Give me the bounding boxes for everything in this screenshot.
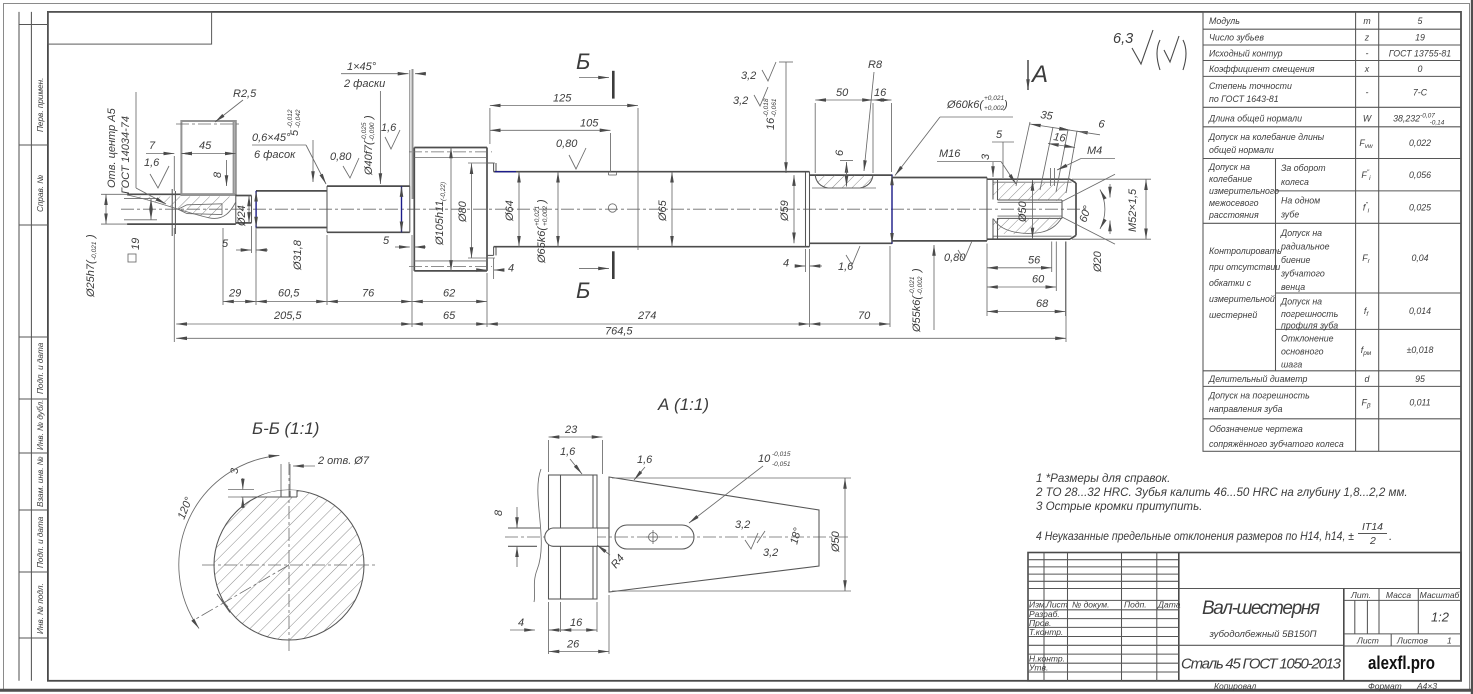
svg-text:+0,002: +0,002: [984, 105, 1004, 112]
svg-text:-0,002: -0,002: [917, 276, 924, 295]
svg-text:68: 68: [1036, 298, 1049, 310]
svg-text:колебание: колебание: [1209, 174, 1252, 184]
svg-text:29: 29: [228, 288, 241, 300]
svg-text:Исходный контур: Исходный контур: [1209, 49, 1283, 59]
svg-text:76: 76: [362, 288, 375, 300]
svg-text:2 отв. Ø7: 2 отв. Ø7: [317, 455, 370, 467]
svg-text:4: 4: [508, 263, 514, 275]
svg-text:45: 45: [199, 140, 212, 152]
svg-text:-0,042: -0,042: [295, 109, 302, 128]
svg-text:Ø40f7(: Ø40f7(: [363, 140, 375, 176]
svg-text:2 фаски: 2 фаски: [343, 78, 385, 90]
svg-text:Лит.: Лит.: [1350, 590, 1371, 600]
svg-text:1,6: 1,6: [144, 157, 160, 169]
svg-text:Взам. инв. №: Взам. инв. №: [36, 456, 45, 507]
svg-text:5: 5: [289, 129, 301, 136]
svg-text:Ø31,8: Ø31,8: [292, 239, 304, 271]
svg-text:19: 19: [130, 238, 142, 250]
svg-text:Отв. центр А5: Отв. центр А5: [106, 107, 118, 188]
svg-text:1,6: 1,6: [381, 122, 397, 134]
svg-text:1×45°: 1×45°: [347, 61, 377, 73]
svg-text:Ø50: Ø50: [830, 530, 842, 553]
svg-text:Подп. и дата: Подп. и дата: [36, 342, 45, 394]
svg-text:Ø105h11: Ø105h11: [434, 201, 446, 246]
svg-text:6,3: 6,3: [1113, 31, 1133, 47]
svg-text:ГОСТ 13755-81: ГОСТ 13755-81: [1389, 49, 1451, 59]
svg-text:Контролировать: Контролировать: [1209, 246, 1282, 256]
svg-text:Длина общей нормали: Длина общей нормали: [1208, 114, 1302, 124]
svg-text:x: x: [1364, 64, 1370, 74]
svg-text:колеса: колеса: [1281, 177, 1309, 187]
svg-text:1:2: 1:2: [1431, 610, 1450, 625]
svg-text:3,2: 3,2: [735, 519, 750, 531]
svg-text:0,011: 0,011: [1409, 398, 1430, 408]
svg-text:М16: М16: [939, 148, 961, 160]
svg-text:расстояния: расстояния: [1208, 210, 1259, 220]
svg-text:зубодолбежный 5В150П: зубодолбежный 5В150П: [1209, 629, 1317, 640]
svg-text:Допуск на: Допуск на: [1208, 162, 1250, 172]
svg-text:R2,5: R2,5: [233, 88, 257, 100]
svg-text:5: 5: [383, 235, 390, 247]
svg-text:Формат: Формат: [1368, 681, 1402, 691]
svg-text:Ø59: Ø59: [779, 200, 791, 222]
svg-text:alexfl.pro: alexfl.pro: [1368, 653, 1435, 673]
svg-text:7: 7: [149, 140, 156, 152]
svg-text:6: 6: [834, 149, 846, 156]
svg-text:Вал-шестерня: Вал-шестерня: [1202, 598, 1320, 619]
svg-text:зубе: зубе: [1280, 210, 1299, 220]
svg-text:Ø55k6(: Ø55k6(: [911, 295, 923, 333]
svg-text:3: 3: [980, 153, 992, 160]
svg-text:W: W: [1363, 114, 1372, 124]
svg-text:Инв. № подл.: Инв. № подл.: [36, 583, 45, 634]
svg-text:(-0,22): (-0,22): [440, 182, 447, 201]
svg-text:0,80: 0,80: [330, 151, 352, 163]
svg-text:10: 10: [758, 453, 771, 465]
svg-text:Масса: Масса: [1386, 590, 1411, 600]
svg-text:Степень точности: Степень точности: [1209, 81, 1292, 91]
svg-text:Б: Б: [576, 278, 590, 303]
svg-text:-0,021: -0,021: [91, 241, 98, 260]
svg-text:профиля зуба: профиля зуба: [1281, 321, 1338, 331]
svg-text:по ГОСТ 1643-81: по ГОСТ 1643-81: [1209, 94, 1279, 104]
svg-text:1,6: 1,6: [560, 446, 576, 458]
svg-text:направления зуба: направления зуба: [1209, 404, 1283, 414]
svg-text:№ докум.: № докум.: [1072, 600, 1109, 610]
svg-text:3,2: 3,2: [763, 547, 778, 559]
svg-text:m: m: [1363, 16, 1370, 26]
svg-text:3: 3: [229, 467, 241, 474]
svg-text:Ø25h7(: Ø25h7(: [85, 259, 97, 298]
svg-text:-: -: [1366, 88, 1369, 98]
svg-text:.: .: [1389, 530, 1392, 543]
svg-text:шестерней: шестерней: [1209, 310, 1257, 320]
svg-text:Обозначение чертежа: Обозначение чертежа: [1209, 424, 1303, 434]
svg-text:16: 16: [570, 617, 583, 629]
svg-text:1 *Размеры для справок.: 1 *Размеры для справок.: [1036, 472, 1170, 485]
svg-text:205,5: 205,5: [273, 310, 302, 322]
svg-text:2: 2: [1369, 535, 1376, 547]
svg-text:4: 4: [783, 258, 789, 270]
svg-text:125: 125: [553, 93, 572, 105]
svg-text:сопряжённого зубчатого колеса: сопряжённого зубчатого колеса: [1209, 439, 1344, 449]
svg-text:Подп. и дата: Подп. и дата: [36, 516, 45, 568]
svg-text:Лист: Лист: [1045, 600, 1068, 610]
svg-text:16: 16: [765, 117, 777, 130]
svg-text:764,5: 764,5: [605, 326, 633, 338]
svg-text:венца: венца: [1281, 282, 1305, 292]
svg-text:-0,015: -0,015: [772, 451, 791, 458]
svg-text:На одном: На одном: [1281, 196, 1320, 206]
svg-text:5: 5: [1418, 16, 1423, 26]
svg-text:Допуск на погрешность: Допуск на погрешность: [1208, 391, 1310, 401]
svg-text:Т.контр.: Т.контр.: [1029, 627, 1063, 637]
svg-text:Допуск на колебание длины: Допуск на колебание длины: [1208, 132, 1325, 142]
svg-text:радиальное: радиальное: [1280, 242, 1330, 252]
svg-text:-0,061: -0,061: [771, 98, 778, 117]
svg-text:За оборот: За оборот: [1281, 163, 1326, 173]
svg-text:56: 56: [1028, 255, 1041, 267]
svg-text:274: 274: [637, 310, 656, 322]
svg-text:0,6×45°: 0,6×45°: [252, 132, 291, 144]
svg-text:при отсутствии: при отсутствии: [1209, 262, 1280, 272]
svg-text:8: 8: [493, 509, 505, 516]
svg-text:0,80: 0,80: [556, 138, 578, 150]
svg-text:+0,002: +0,002: [542, 206, 549, 226]
svg-text:Копировал: Копировал: [1214, 681, 1256, 691]
svg-text:-0,090: -0,090: [369, 122, 376, 141]
svg-text:0,014: 0,014: [1409, 306, 1431, 316]
svg-text:95: 95: [1415, 374, 1425, 384]
svg-text:биение: биение: [1281, 255, 1310, 265]
svg-text:60,5: 60,5: [278, 288, 300, 300]
svg-text:65: 65: [443, 310, 456, 322]
svg-text:А4×3: А4×3: [1416, 681, 1437, 691]
svg-text:0: 0: [1418, 64, 1423, 74]
svg-text:Отклонение: Отклонение: [1281, 334, 1334, 344]
svg-text:общей нормали: общей нормали: [1209, 145, 1274, 155]
svg-text:А (1:1): А (1:1): [657, 395, 709, 414]
svg-text:26: 26: [566, 639, 580, 651]
svg-text:Ø60k6(: Ø60k6(: [946, 99, 984, 111]
svg-text:Лист: Лист: [1356, 636, 1379, 646]
svg-text:70: 70: [858, 310, 871, 322]
svg-text:-0,018: -0,018: [763, 98, 770, 117]
svg-text:-0,021: -0,021: [909, 276, 916, 295]
svg-text:А: А: [1030, 61, 1048, 88]
svg-text:зубчатого: зубчатого: [1280, 269, 1325, 279]
svg-text:Ø50: Ø50: [1017, 200, 1029, 223]
svg-text:Делительный диаметр: Делительный диаметр: [1208, 374, 1308, 384]
svg-text:3,2: 3,2: [741, 70, 756, 82]
svg-text:Листов: Листов: [1396, 636, 1429, 646]
svg-text:ГОСТ 14034-74: ГОСТ 14034-74: [120, 116, 132, 194]
svg-text:Перв. примен.: Перв. примен.: [36, 78, 45, 132]
svg-text:4 Неуказанные предельные откл: 4 Неуказанные предельные отклонения разм…: [1036, 530, 1354, 543]
svg-text:1: 1: [1447, 636, 1452, 646]
svg-text:Ø24: Ø24: [236, 205, 248, 227]
svg-text:5: 5: [996, 129, 1003, 141]
svg-text:19: 19: [1415, 33, 1425, 43]
svg-text:+0,021: +0,021: [984, 95, 1004, 102]
svg-text:23: 23: [564, 424, 578, 436]
svg-text:1,6: 1,6: [637, 454, 653, 466]
svg-text:50: 50: [836, 87, 849, 99]
svg-text:1,6: 1,6: [838, 261, 854, 273]
svg-text:М52×1,5: М52×1,5: [1127, 188, 1139, 232]
svg-text:Изм.: Изм.: [1029, 600, 1047, 610]
svg-text:Б-Б (1:1): Б-Б (1:1): [252, 419, 319, 438]
svg-text:4: 4: [518, 617, 524, 629]
svg-text:Ø65: Ø65: [657, 199, 669, 222]
svg-text:-0,025: -0,025: [361, 122, 368, 141]
svg-text:-0,012: -0,012: [287, 109, 294, 128]
svg-text:М4: М4: [1087, 145, 1102, 157]
svg-text:7-С: 7-С: [1413, 88, 1428, 98]
svg-text:Масштаб: Масштаб: [1420, 590, 1461, 600]
svg-text:погрешность: погрешность: [1281, 309, 1339, 319]
svg-text:±0,018: ±0,018: [1407, 345, 1434, 355]
svg-text:0,056: 0,056: [1409, 170, 1431, 180]
svg-text:Ø64: Ø64: [504, 200, 516, 222]
svg-text:5: 5: [222, 238, 229, 250]
svg-text:Число зубьев: Число зубьев: [1209, 33, 1264, 43]
svg-text:+0,021: +0,021: [534, 206, 541, 226]
svg-text:105: 105: [580, 118, 599, 130]
svg-text:Ø65k6(: Ø65k6(: [536, 226, 548, 264]
svg-text:60: 60: [1032, 274, 1045, 286]
svg-text:6 фасок: 6 фасок: [254, 149, 296, 161]
svg-text:0,04: 0,04: [1411, 253, 1428, 263]
svg-text:основного: основного: [1281, 347, 1324, 357]
svg-text:измерительной: измерительной: [1209, 294, 1275, 304]
svg-text:16: 16: [874, 87, 887, 99]
svg-text:Дата: Дата: [1157, 600, 1181, 610]
svg-text:межосевого: межосевого: [1209, 198, 1259, 208]
svg-text:0,022: 0,022: [1409, 138, 1431, 148]
svg-text:R8: R8: [868, 59, 883, 71]
svg-text:3,2: 3,2: [733, 95, 748, 107]
svg-text:Ø20: Ø20: [1092, 250, 1104, 273]
svg-text:62: 62: [443, 288, 455, 300]
svg-text:z: z: [1364, 33, 1370, 43]
svg-text:Допуск на: Допуск на: [1280, 297, 1322, 307]
svg-text:измерительного: измерительного: [1209, 186, 1279, 196]
svg-text:Сталь 45 ГОСТ 1050-2013: Сталь 45 ГОСТ 1050-2013: [1181, 656, 1342, 673]
svg-text:Справ. №: Справ. №: [36, 175, 45, 212]
svg-text:Утв.: Утв.: [1028, 663, 1048, 673]
svg-text:-: -: [1366, 49, 1369, 59]
svg-text:Ø80: Ø80: [457, 200, 469, 223]
svg-text:-0,051: -0,051: [772, 461, 791, 468]
svg-text:обкатки с: обкатки с: [1209, 278, 1252, 288]
svg-text:шага: шага: [1281, 360, 1302, 370]
svg-text:0,025: 0,025: [1409, 203, 1431, 213]
svg-text:2 ТО 28...32 HRC. Зубья калит: 2 ТО 28...32 HRC. Зубья калить 46...50 H…: [1035, 486, 1408, 499]
svg-text:8: 8: [212, 171, 224, 178]
svg-text:Коэффициент смещения: Коэффициент смещения: [1209, 64, 1315, 74]
svg-text:3 Острые кромки притупить.: 3 Острые кромки притупить.: [1036, 500, 1202, 513]
svg-text:Б: Б: [576, 49, 590, 74]
svg-text:Инв. № дубл.: Инв. № дубл.: [36, 400, 45, 450]
svg-text:Подп.: Подп.: [1124, 600, 1147, 610]
svg-text:Допуск на: Допуск на: [1280, 228, 1322, 238]
svg-text:IT14: IT14: [1362, 521, 1383, 533]
svg-text:Модуль: Модуль: [1209, 16, 1240, 26]
